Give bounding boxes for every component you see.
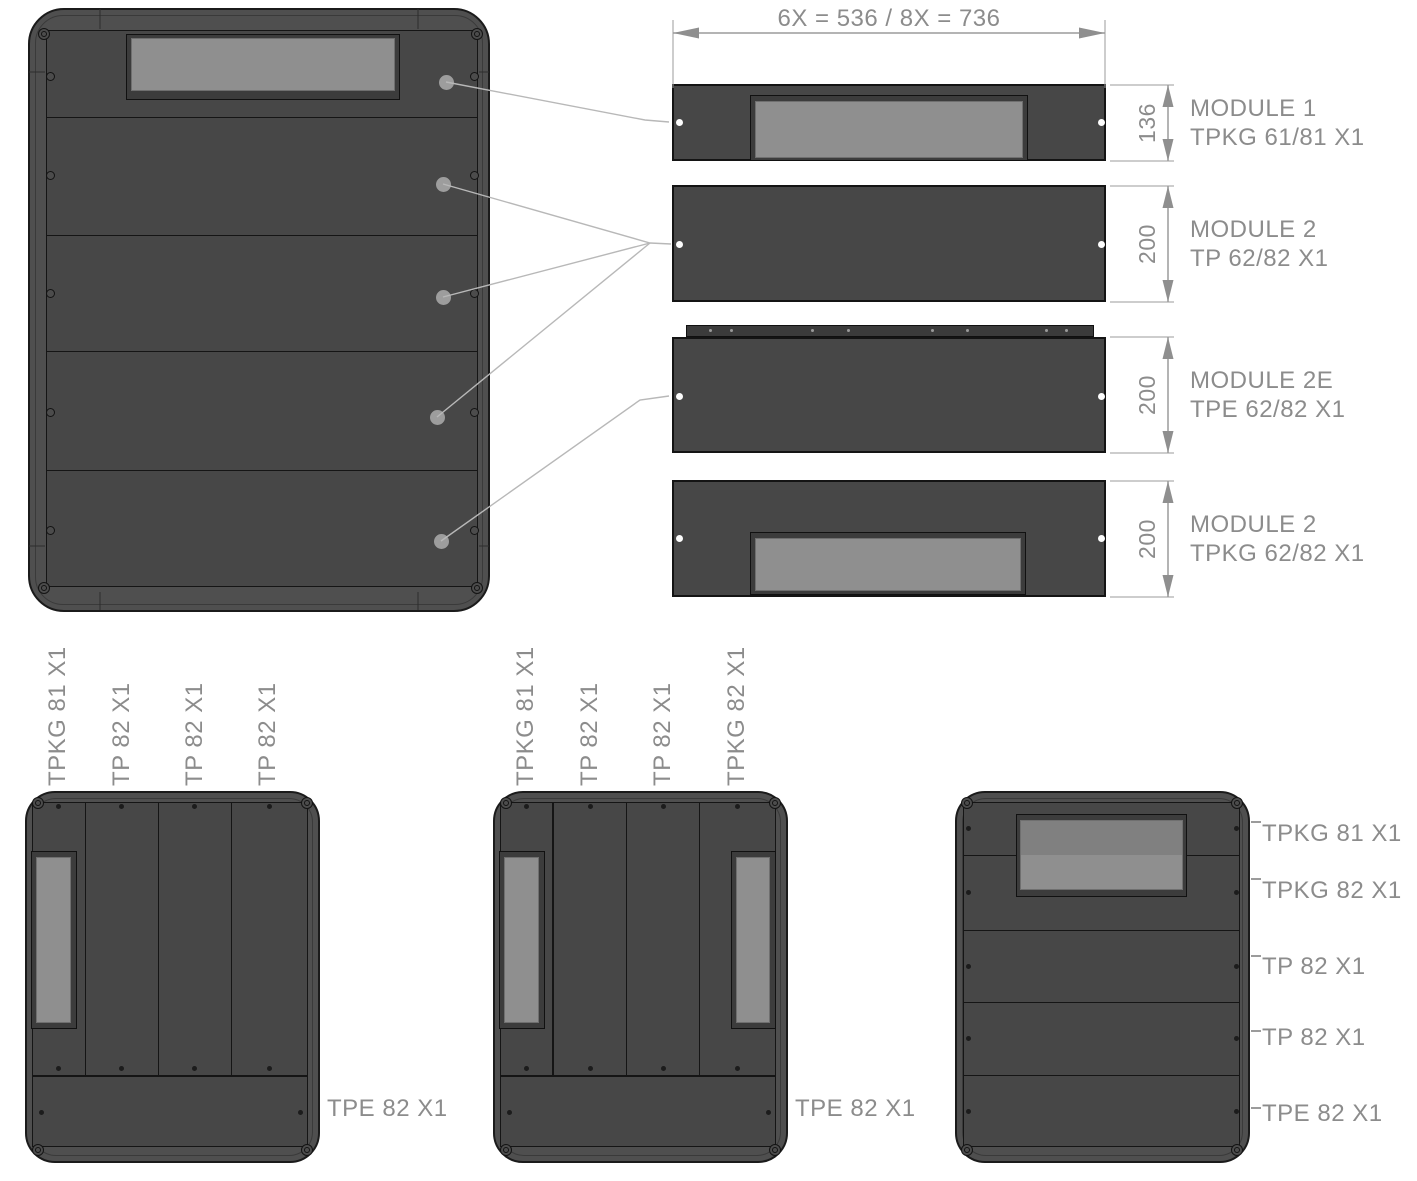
- arrowhead-icon: [1163, 337, 1174, 359]
- panel-screw-icon: [1234, 1109, 1239, 1114]
- callout-dot: [436, 290, 451, 305]
- panel-screw-icon: [1234, 964, 1239, 969]
- panel-screw-icon: [298, 1110, 303, 1115]
- panel-screw-icon: [966, 890, 971, 895]
- arrowhead-icon: [1163, 139, 1174, 161]
- module1-hole: [676, 119, 683, 126]
- cabinet-c-row-label: TP 82 X1: [1262, 953, 1366, 981]
- module2e-panel: [672, 337, 1106, 453]
- panel-screw-icon: [661, 1066, 666, 1071]
- top-dimension-text: 6X = 536 / 8X = 736: [689, 5, 1089, 33]
- corner-screw-icon: [38, 582, 50, 594]
- cabinet-b-window-right: [736, 857, 770, 1023]
- drawing-canvas: 6X = 536 / 8X = 736 136 200 200 200 MODU…: [0, 0, 1417, 1181]
- corner-screw-icon: [500, 797, 512, 809]
- panel-screw-icon: [267, 804, 272, 809]
- module-part-number: TPE 62/82 X1: [1190, 395, 1345, 424]
- cabinet-a-column-label: TP 82 X1: [182, 682, 208, 786]
- main-module-slot-4: [46, 351, 478, 471]
- panel-screw-icon: [588, 804, 593, 809]
- module2e-height-dim: 200: [1134, 355, 1160, 435]
- panel-screw-icon: [1234, 1036, 1239, 1041]
- panel-screw-icon: [661, 804, 666, 809]
- cabinet-b-column-label: TP 82 X1: [577, 682, 603, 786]
- module2-label: MODULE 2 TP 62/82 X1: [1190, 215, 1328, 273]
- arrowhead-icon: [1163, 431, 1174, 453]
- panel-screw-icon: [588, 1066, 593, 1071]
- module1-window: [755, 101, 1023, 158]
- module2e-hole: [676, 393, 683, 400]
- panel-screw-icon: [1234, 826, 1239, 831]
- panel-screw-icon: [966, 1109, 971, 1114]
- rail-hole: [709, 329, 712, 332]
- label-tick: [1251, 822, 1261, 1108]
- cabinet-a-window: [36, 857, 71, 1023]
- rail-hole: [730, 329, 733, 332]
- corner-screw-icon: [471, 582, 483, 594]
- corner-screw-icon: [769, 797, 781, 809]
- rail-hole: [1065, 329, 1068, 332]
- rail-hole: [811, 329, 814, 332]
- arrowhead-icon: [1163, 575, 1174, 597]
- module2-tpkg-window: [755, 538, 1021, 591]
- panel-screw-icon: [507, 1110, 512, 1115]
- module-name: MODULE 2E: [1190, 366, 1345, 395]
- main-module-slot-3: [46, 235, 478, 352]
- panel-screw-icon: [470, 408, 479, 417]
- arrowhead-icon: [1163, 85, 1174, 107]
- module2-hole: [676, 241, 683, 248]
- arrowhead-icon: [1163, 481, 1174, 503]
- panel-screw-icon: [966, 964, 971, 969]
- cabinet-b-window-left: [504, 857, 539, 1023]
- panel-screw-icon: [735, 804, 740, 809]
- panel-screw-icon: [766, 1110, 771, 1115]
- cabinet-a-column-label: TP 82 X1: [255, 682, 281, 786]
- module2-tpkg-height-dim: 200: [1134, 499, 1160, 579]
- cabinet-b-bottom-strip: [500, 1076, 776, 1147]
- cabinet-c-row-label: TPKG 82 X1: [1262, 877, 1402, 905]
- callout-dot: [439, 75, 454, 90]
- module2-tpkg-hole: [1098, 535, 1105, 542]
- panel-screw-icon: [966, 1036, 971, 1041]
- panel-screw-icon: [966, 826, 971, 831]
- corner-screw-icon: [961, 1144, 973, 1156]
- cabinet-c-row-4: [963, 1002, 1240, 1076]
- callout-dot: [436, 177, 451, 192]
- rail-hole: [847, 329, 850, 332]
- cabinet-b-column-label: TPKG 82 X1: [724, 646, 750, 786]
- module2e-label: MODULE 2E TPE 62/82 X1: [1190, 366, 1345, 424]
- rail-hole: [966, 329, 969, 332]
- corner-screw-icon: [301, 1144, 313, 1156]
- panel-screw-icon: [524, 1066, 529, 1071]
- corner-screw-icon: [38, 28, 50, 40]
- callout-dot: [430, 410, 445, 425]
- cabinet-a-col-2: [85, 802, 159, 1076]
- panel-screw-icon: [46, 289, 55, 298]
- module-name: MODULE 2: [1190, 510, 1365, 539]
- cabinet-c-row-5: [963, 1075, 1240, 1147]
- main-display-window: [131, 38, 395, 91]
- panel-screw-icon: [470, 289, 479, 298]
- panel-screw-icon: [470, 171, 479, 180]
- module2-height-dim: 200: [1134, 204, 1160, 284]
- panel-screw-icon: [56, 804, 61, 809]
- cabinet-c-row-label: TPE 82 X1: [1262, 1100, 1383, 1128]
- cabinet-c-row-3: [963, 930, 1240, 1003]
- module-name: MODULE 1: [1190, 94, 1365, 123]
- corner-screw-icon: [769, 1144, 781, 1156]
- cabinet-a-col-4: [231, 802, 308, 1076]
- corner-screw-icon: [1231, 1144, 1243, 1156]
- cabinet-b-col-2: [553, 802, 627, 1076]
- cabinet-a-column-label: TP 82 X1: [109, 682, 135, 786]
- panel-screw-icon: [1234, 890, 1239, 895]
- panel-screw-icon: [46, 171, 55, 180]
- panel-screw-icon: [470, 72, 479, 81]
- panel-screw-icon: [39, 1110, 44, 1115]
- cabinet-a-bottom-label: TPE 82 X1: [327, 1095, 448, 1123]
- panel-screw-icon: [46, 526, 55, 535]
- panel-screw-icon: [46, 72, 55, 81]
- main-module-slot-2: [46, 117, 478, 236]
- module2-hole: [1098, 241, 1105, 248]
- panel-screw-icon: [192, 804, 197, 809]
- module-name: MODULE 2: [1190, 215, 1328, 244]
- corner-screw-icon: [1231, 797, 1243, 809]
- module1-height-dim: 136: [1134, 83, 1160, 163]
- module-part-number: TPKG 62/82 X1: [1190, 539, 1365, 568]
- panel-screw-icon: [119, 804, 124, 809]
- corner-screw-icon: [471, 28, 483, 40]
- arrowhead-icon: [1163, 280, 1174, 302]
- cabinet-b-column-label: TP 82 X1: [650, 682, 676, 786]
- panel-screw-icon: [192, 1066, 197, 1071]
- cabinet-a-col-3: [158, 802, 232, 1076]
- corner-screw-icon: [500, 1144, 512, 1156]
- panel-screw-icon: [267, 1066, 272, 1071]
- arrowhead-icon: [1163, 186, 1174, 208]
- main-module-slot-5: [46, 470, 478, 587]
- cabinet-b-column-label: TPKG 81 X1: [513, 646, 539, 786]
- rail-hole: [931, 329, 934, 332]
- module2-tpkg-label: MODULE 2 TPKG 62/82 X1: [1190, 510, 1365, 568]
- callout-dot: [434, 534, 449, 549]
- rail-hole: [1045, 329, 1048, 332]
- cabinet-c-row-label: TP 82 X1: [1262, 1024, 1366, 1052]
- corner-screw-icon: [32, 797, 44, 809]
- corner-screw-icon: [32, 1144, 44, 1156]
- module-part-number: TPKG 61/81 X1: [1190, 123, 1365, 152]
- module2e-hole: [1098, 393, 1105, 400]
- cabinet-a-column-label: TPKG 81 X1: [45, 646, 71, 786]
- cabinet-c-window-shade: [1021, 821, 1182, 855]
- panel-screw-icon: [524, 804, 529, 809]
- corner-screw-icon: [301, 797, 313, 809]
- cabinet-b-bottom-label: TPE 82 X1: [795, 1095, 916, 1123]
- cabinet-b-col-3: [626, 802, 700, 1076]
- module2-panel: [672, 185, 1106, 302]
- module2e-mounting-rail: [686, 325, 1094, 337]
- panel-screw-icon: [470, 526, 479, 535]
- panel-screw-icon: [56, 1066, 61, 1071]
- module1-label: MODULE 1 TPKG 61/81 X1: [1190, 94, 1365, 152]
- module1-hole: [1098, 119, 1105, 126]
- panel-screw-icon: [46, 408, 55, 417]
- cabinet-a-bottom-strip: [32, 1076, 308, 1147]
- panel-screw-icon: [119, 1066, 124, 1071]
- cabinet-c-row-label: TPKG 81 X1: [1262, 820, 1402, 848]
- module2-tpkg-hole: [676, 535, 683, 542]
- panel-screw-icon: [735, 1066, 740, 1071]
- module-part-number: TP 62/82 X1: [1190, 244, 1328, 273]
- corner-screw-icon: [961, 797, 973, 809]
